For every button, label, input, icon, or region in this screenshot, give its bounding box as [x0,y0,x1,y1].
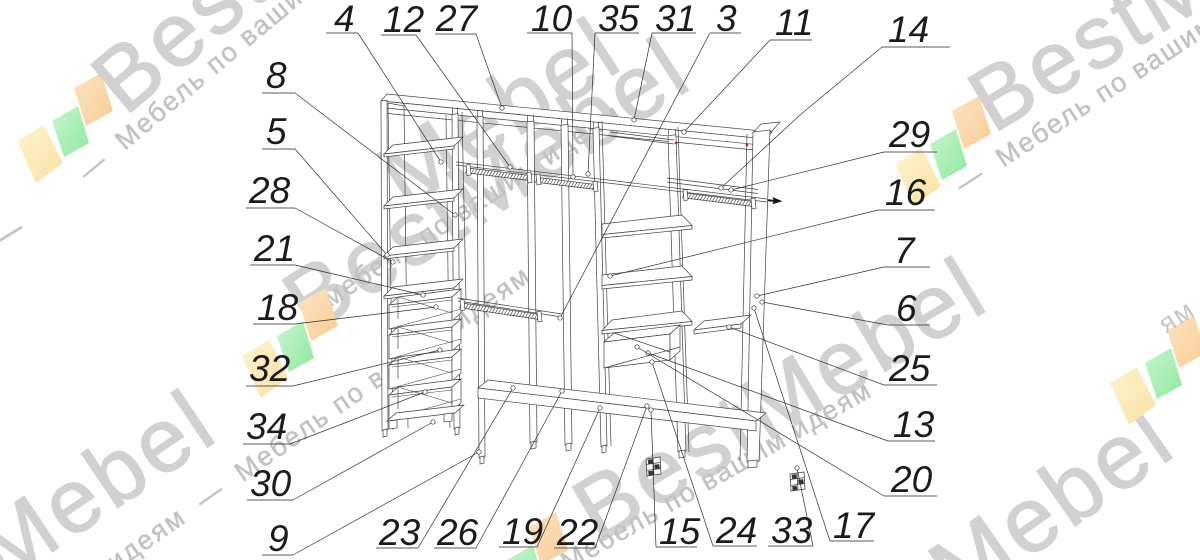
svg-text:15: 15 [659,511,701,552]
svg-text:26: 26 [436,512,479,553]
svg-text:29: 29 [888,114,930,155]
svg-text:25: 25 [888,348,931,389]
svg-text:13: 13 [893,404,935,445]
svg-text:24: 24 [715,510,757,551]
svg-text:23: 23 [378,512,421,553]
svg-text:16: 16 [885,172,927,213]
svg-text:BestMebel: BestMebel [0,371,234,560]
svg-text:14: 14 [888,9,929,50]
svg-text:9: 9 [268,518,289,559]
svg-text:21: 21 [253,228,295,269]
svg-text:7: 7 [894,230,916,271]
svg-text:11: 11 [775,2,813,43]
svg-text:6: 6 [896,288,917,329]
svg-text:17: 17 [833,505,876,546]
svg-text:33: 33 [771,510,813,551]
svg-text:22: 22 [556,512,599,553]
svg-text:18: 18 [257,287,299,328]
svg-text:12: 12 [383,0,425,40]
svg-text:27: 27 [435,0,479,39]
svg-text:30: 30 [250,463,292,504]
svg-text:34: 34 [246,406,287,447]
svg-text:19: 19 [502,511,543,552]
svg-text:8: 8 [266,55,287,96]
svg-text:5: 5 [266,111,287,152]
svg-text:32: 32 [249,348,291,389]
svg-text:20: 20 [890,459,933,500]
svg-text:28: 28 [248,170,291,211]
